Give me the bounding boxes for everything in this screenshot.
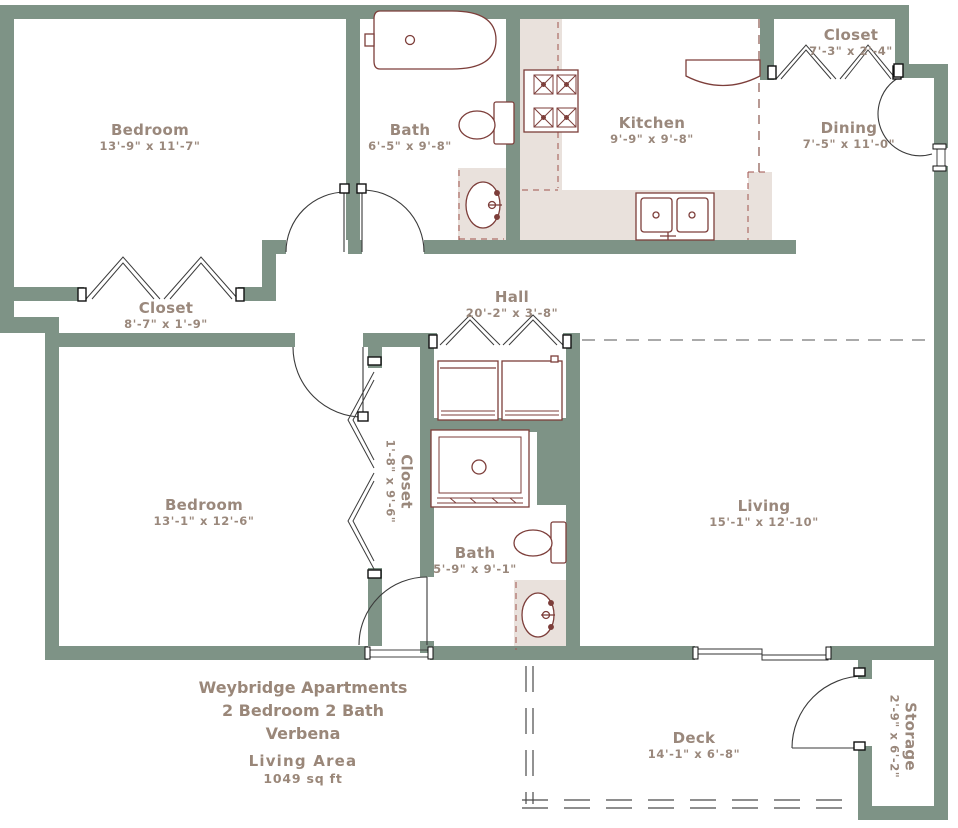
storage-door	[792, 676, 864, 748]
living-area-label: Living Area	[190, 752, 416, 771]
toilet1-bowl	[459, 111, 495, 139]
closet2-bifold	[86, 257, 238, 299]
tub-drain	[406, 36, 415, 45]
floor-plan-drawing	[0, 0, 958, 828]
tub-faucet	[365, 34, 374, 46]
toilet2-bowl	[514, 530, 552, 556]
floorplan-name: Verbena	[190, 722, 416, 745]
apartment-name: Weybridge Apartments	[190, 676, 416, 699]
living-area-value: 1049 sq ft	[190, 771, 416, 787]
floor-plan: Bedroom 13'-9" x 11'-7" Bath 6'-5" x 9'-…	[0, 0, 958, 828]
patio-sliding-door	[693, 647, 831, 660]
dryer-knob	[551, 356, 558, 362]
bath1-door	[362, 190, 424, 252]
shower-drain	[472, 460, 486, 474]
laundry-fixtures	[438, 356, 562, 420]
dining-window	[934, 148, 948, 166]
entry-door	[878, 78, 932, 156]
refrigerator	[686, 60, 760, 86]
bedroom1-door	[286, 190, 346, 252]
closet3-bifold	[348, 372, 374, 569]
bathtub	[374, 11, 496, 69]
kitchen-peninsula	[748, 172, 772, 240]
toilet1-tank	[494, 102, 514, 144]
deck-railing	[522, 666, 858, 808]
unit-type: 2 Bedroom 2 Bath	[190, 699, 416, 722]
closet1-bifold	[776, 45, 896, 79]
toilet2-tank	[551, 522, 566, 563]
bedroom2-door	[293, 347, 363, 417]
title-block: Weybridge Apartments 2 Bedroom 2 Bath Ve…	[190, 676, 416, 787]
laundry-bifold	[440, 315, 563, 345]
